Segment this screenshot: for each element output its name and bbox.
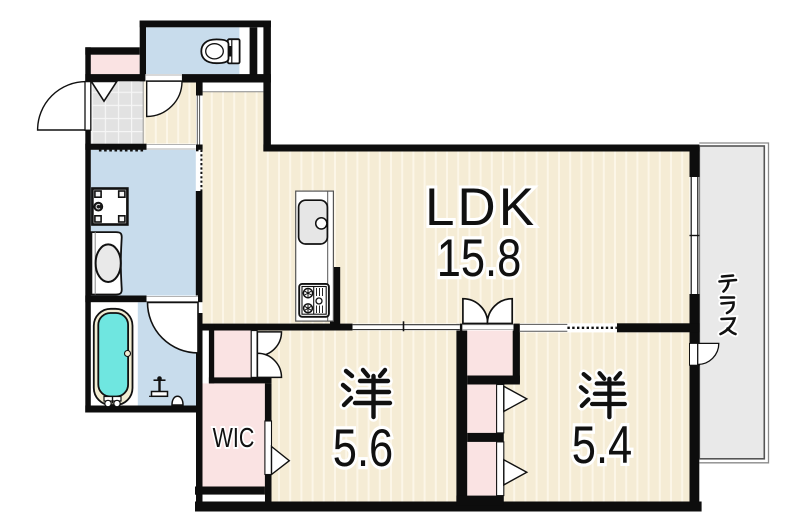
svg-text:5.4: 5.4 xyxy=(572,416,632,475)
svg-text:5.6: 5.6 xyxy=(333,419,393,478)
svg-text:WIC: WIC xyxy=(213,424,255,454)
svg-text:15.8: 15.8 xyxy=(437,229,522,288)
